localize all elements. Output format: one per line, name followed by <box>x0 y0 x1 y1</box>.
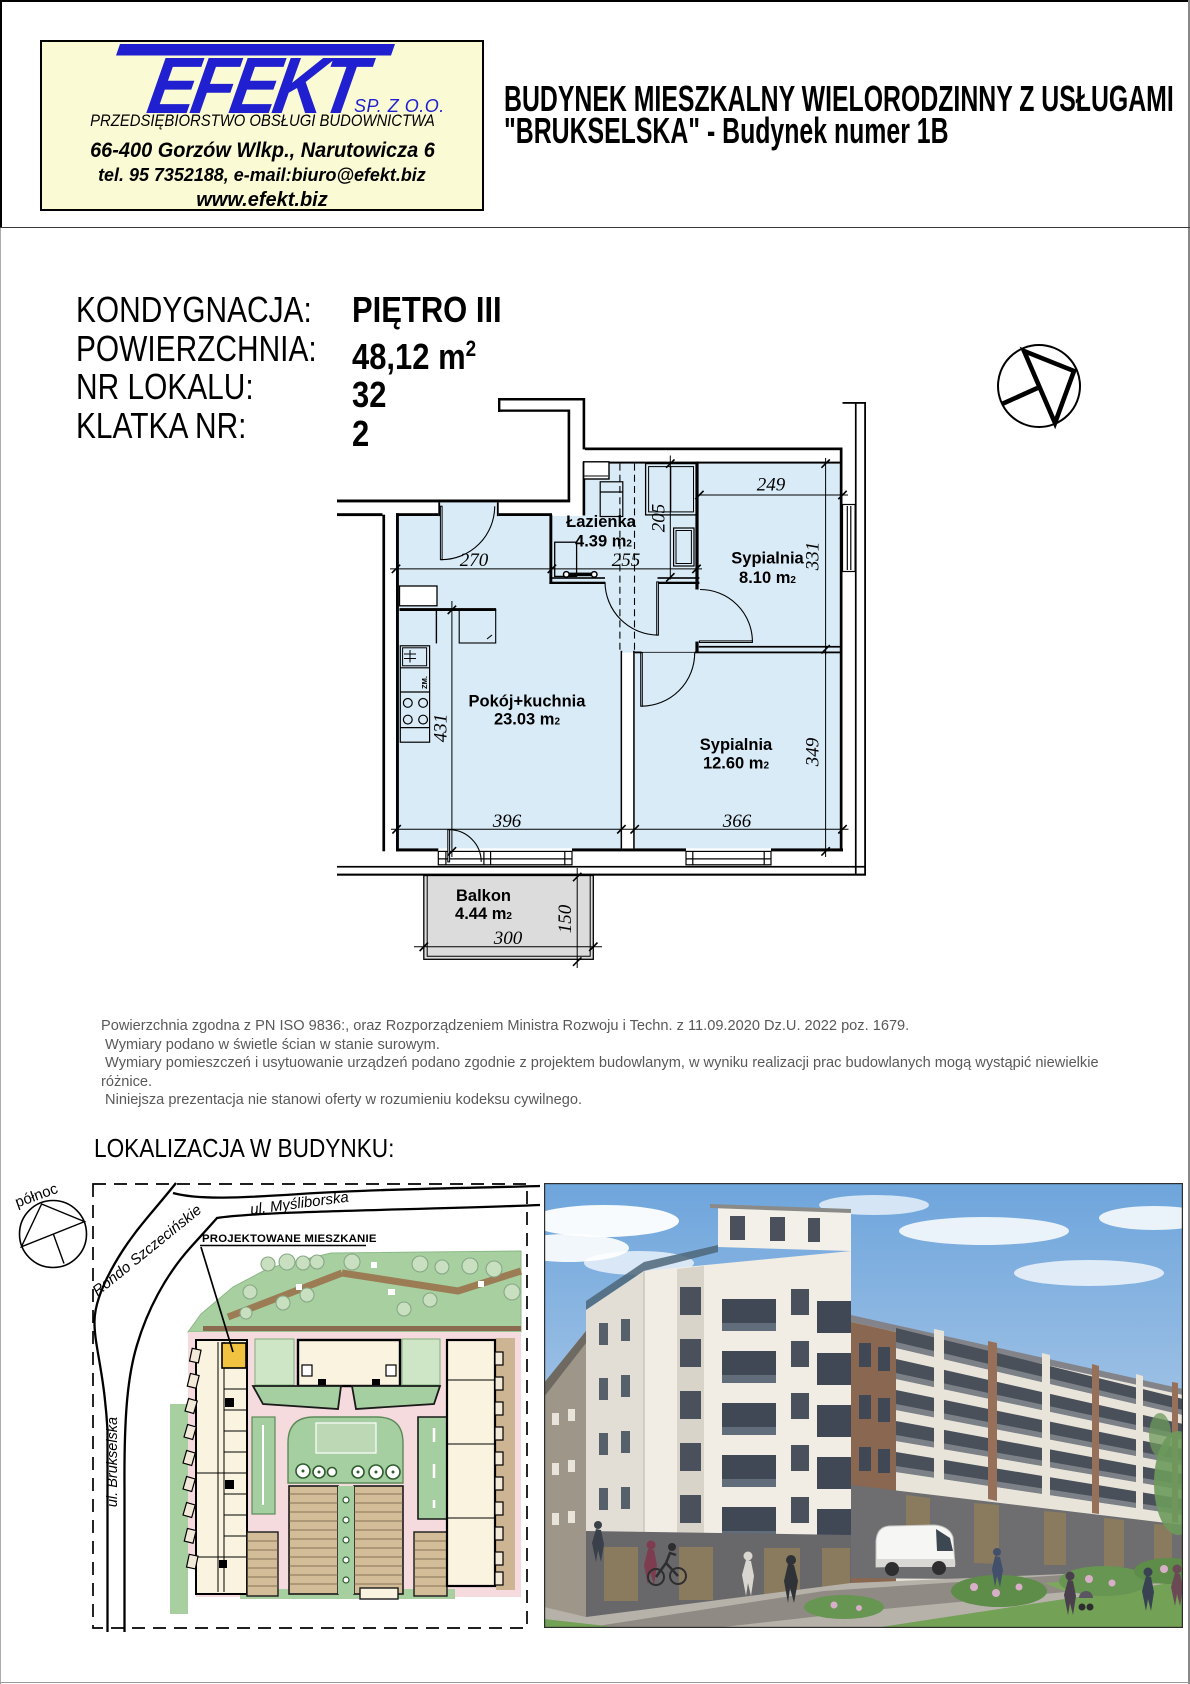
svg-text:255: 255 <box>612 550 641 571</box>
svg-text:8.10 m2: 8.10 m2 <box>739 569 796 587</box>
svg-text:396: 396 <box>492 811 522 832</box>
svg-text:12.60 m2: 12.60 m2 <box>703 755 770 773</box>
svg-text:Pokój+kuchnia: Pokój+kuchnia <box>469 693 587 711</box>
svg-text:366: 366 <box>722 811 752 832</box>
svg-text:431: 431 <box>431 714 452 743</box>
svg-text:150: 150 <box>555 904 576 933</box>
svg-text:300: 300 <box>493 928 523 949</box>
svg-text:4.44 m2: 4.44 m2 <box>455 905 512 923</box>
svg-text:331: 331 <box>803 542 824 572</box>
svg-text:270: 270 <box>460 550 489 571</box>
svg-text:349: 349 <box>803 737 824 767</box>
svg-text:Łazienka: Łazienka <box>566 513 637 531</box>
svg-text:Sypialnia: Sypialnia <box>731 550 804 568</box>
svg-text:PROJEKTOWANE MIESZKANIE: PROJEKTOWANE MIESZKANIE <box>202 1233 377 1245</box>
svg-text:23.03 m2: 23.03 m2 <box>494 711 561 729</box>
svg-text:Balkon: Balkon <box>456 887 511 905</box>
svg-text:205: 205 <box>649 504 670 533</box>
svg-text:ul. Brukselska: ul. Brukselska <box>105 1417 121 1507</box>
svg-text:4.39 m2: 4.39 m2 <box>575 533 632 551</box>
svg-text:ZM.: ZM. <box>420 676 429 689</box>
svg-text:249: 249 <box>757 475 786 496</box>
svg-text:Sypialnia: Sypialnia <box>700 736 773 754</box>
svg-text:północ: północ <box>13 1180 61 1211</box>
